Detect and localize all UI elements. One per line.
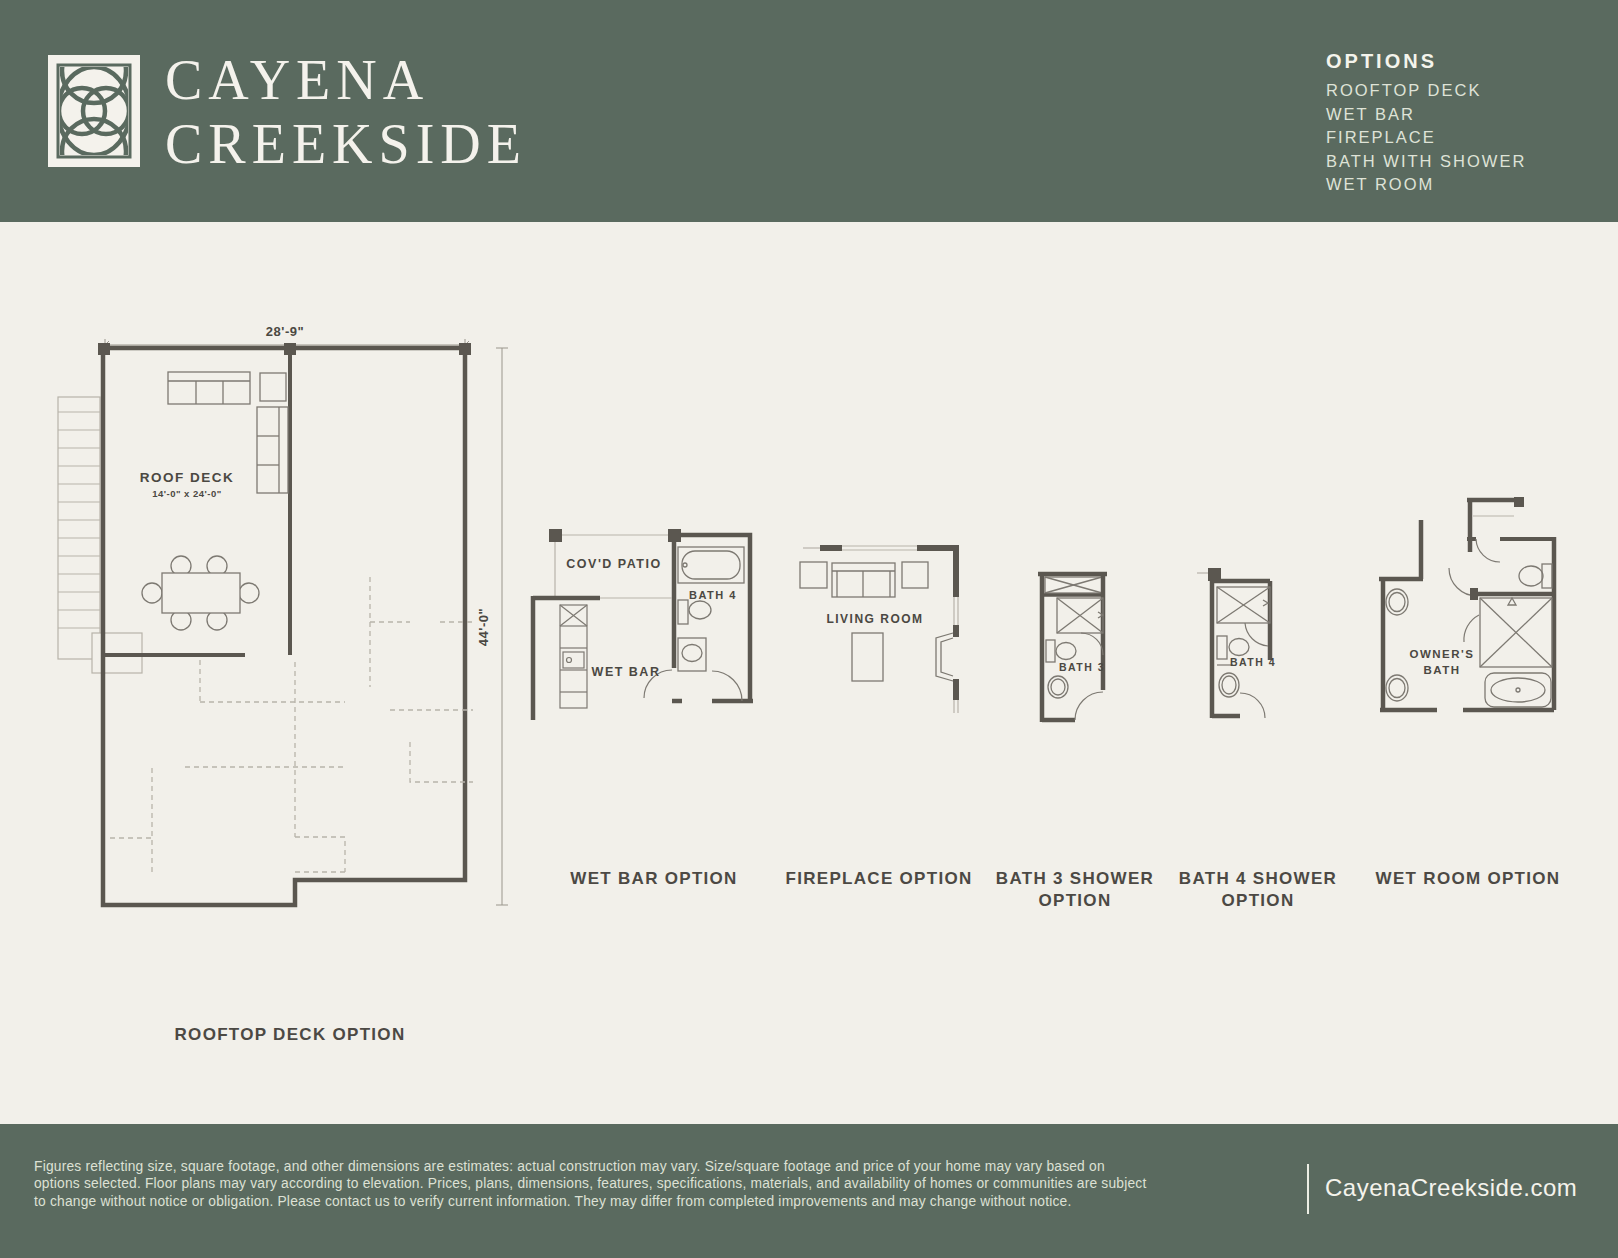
shower [1217,587,1270,623]
option-fireplace: FIREPLACE [1326,126,1526,150]
toilet [1519,564,1552,588]
door-arc [1476,539,1500,562]
brand-logo-icon [48,55,140,171]
options-list: OPTIONS ROOFTOP DECK WET BAR FIREPLACE B… [1326,50,1526,197]
dim-width-label: 28'-9" [266,324,304,339]
bath4-caption-line2: OPTION [1158,890,1358,912]
bath3-label: BATH 3 [1059,661,1105,673]
bath4-label: BATH 4 [689,589,737,601]
bath3-caption: BATH 3 SHOWER OPTION [975,868,1175,912]
bath4-caption-line1: BATH 4 SHOWER [1158,868,1358,890]
door-arc [1075,692,1103,720]
fireplace-caption: FIREPLACE OPTION [779,868,979,890]
bath3-caption-line2: OPTION [975,890,1175,912]
door-arc [1240,693,1265,718]
website-link[interactable]: CayenaCreekside.com [1325,1174,1577,1202]
bath4-caption: BATH 4 SHOWER OPTION [1158,868,1358,912]
dining-set [142,556,259,630]
footer-divider [1307,1164,1309,1214]
side-table [902,562,928,588]
exterior-walls [103,348,465,905]
bathtub [678,547,744,583]
brand-name-line1: CAYENA [165,52,429,108]
brand-name-line2: CREEKSIDE [165,116,527,172]
disclaimer-line2: options selected. Floor plans may vary a… [34,1175,1284,1192]
door-arc [712,671,742,701]
wet-bar-caption: WET BAR OPTION [554,868,754,890]
toilet [1046,640,1076,662]
owners-bath-label-line1: OWNER'S [1410,648,1475,660]
option-wet-bar: WET BAR [1326,103,1526,127]
sink [1386,675,1408,701]
rooftop-deck-floorplan: 28'-9" 44'-0" [50,312,510,937]
sink [678,638,706,671]
side-table [800,562,827,588]
disclaimer-line1: Figures reflecting size, square footage,… [34,1158,1284,1175]
bath3-floorplan: BATH 3 [1030,550,1120,725]
bath3-caption-line1: BATH 3 SHOWER [975,868,1175,890]
toilet [678,600,711,624]
sink [1048,676,1068,698]
option-bath-with-shower: BATH WITH SHOWER [1326,150,1526,174]
owners-bath-label-line2: BATH [1423,664,1460,676]
roof-deck-size: 14'-0" x 24'-0" [152,488,222,499]
header-band: CAYENA CREEKSIDE OPTIONS ROOFTOP DECK WE… [0,0,1618,222]
wet-room-caption: WET ROOM OPTION [1368,868,1568,890]
living-room-label: LIVING ROOM [826,612,923,626]
footer-band: Figures reflecting size, square footage,… [0,1124,1618,1258]
disclaimer-line3: to change without notice or obligation. … [34,1193,1284,1210]
fireplace-floorplan: LIVING ROOM [795,515,965,715]
bath4-floorplan: BATH 4 [1155,545,1280,723]
wet-bar-label: WET BAR [592,665,661,679]
sink [1219,673,1239,697]
fireplace [936,633,953,681]
bath4-label: BATH 4 [1230,656,1276,668]
sink [1386,589,1408,615]
roof-deck-label: ROOF DECK [140,470,235,485]
wet-room-floorplan: OWNER'S BATH [1328,492,1558,722]
linen-closet [1045,577,1102,593]
coffee-table [852,633,883,681]
shower-door-arc [1245,623,1268,646]
sofa [832,563,895,597]
flyer-page: CAYENA CREEKSIDE OPTIONS ROOFTOP DECK WE… [0,0,1618,1258]
shower-door-arc [1464,615,1479,642]
dim-height-label: 44'-0" [476,608,491,646]
wetbar-counter [560,605,587,708]
shower-door-arc [1081,633,1103,655]
option-rooftop-deck: ROOFTOP DECK [1326,79,1526,103]
shower [1057,598,1103,633]
disclaimer-text: Figures reflecting size, square footage,… [34,1158,1284,1210]
freestanding-tub [1485,673,1551,707]
option-wet-room: WET ROOM [1326,173,1526,197]
shower [1480,598,1552,667]
wet-bar-floorplan: COV'D PATIO BATH 4 [525,500,755,725]
rooftop-deck-caption: ROOFTOP DECK OPTION [140,1024,440,1046]
options-title: OPTIONS [1326,50,1526,73]
stairs [58,397,142,673]
covd-patio-label: COV'D PATIO [566,557,661,571]
